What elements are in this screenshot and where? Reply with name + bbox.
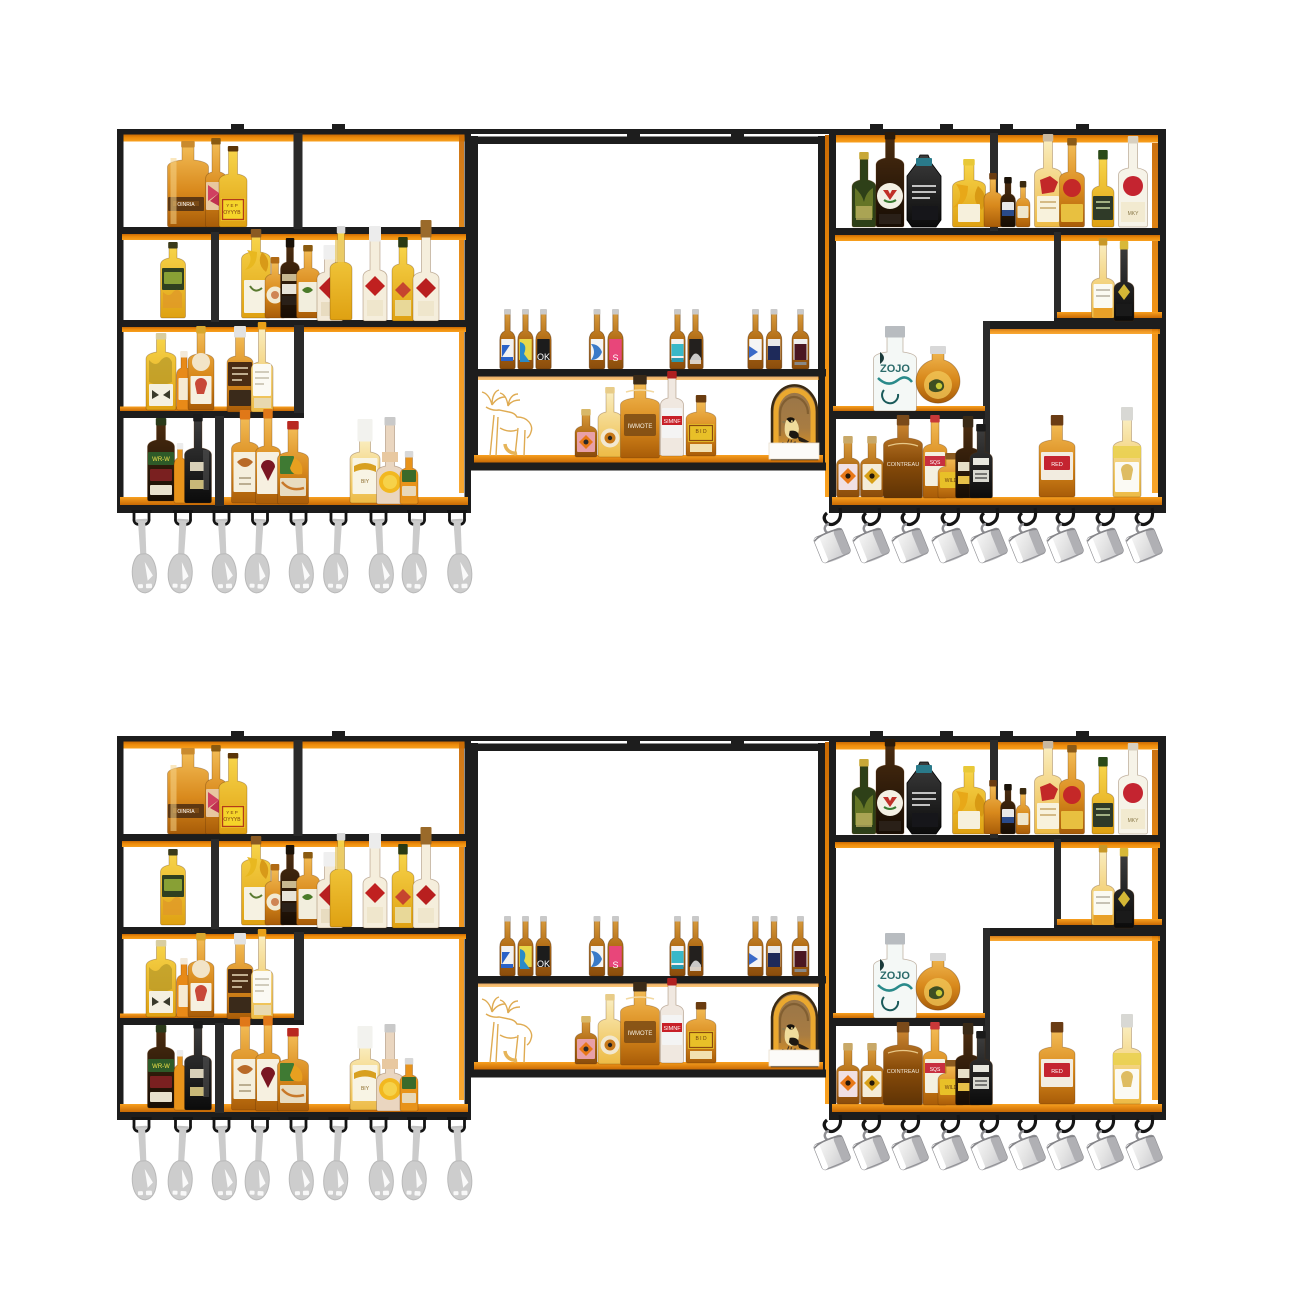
svg-text:OINRIA: OINRIA [177, 202, 195, 208]
svg-text:WR-W: WR-W [152, 457, 170, 463]
svg-text:IWMOTE: IWMOTE [628, 424, 653, 430]
svg-text:BIY: BIY [361, 479, 370, 485]
svg-text:S: S [612, 353, 618, 363]
svg-text:B I D: B I D [695, 429, 707, 435]
svg-text:SIMNF: SIMNF [663, 419, 681, 425]
svg-text:Y E P: Y E P [226, 203, 237, 208]
svg-text:RED: RED [1051, 462, 1063, 468]
svg-text:OYYYB: OYYYB [223, 210, 241, 216]
svg-text:COINTREAU: COINTREAU [887, 462, 919, 468]
svg-text:SQS: SQS [930, 460, 941, 466]
svg-text:OK: OK [537, 352, 550, 362]
svg-text:MKY: MKY [1128, 211, 1140, 217]
svg-text:ZOJO: ZOJO [880, 363, 910, 375]
